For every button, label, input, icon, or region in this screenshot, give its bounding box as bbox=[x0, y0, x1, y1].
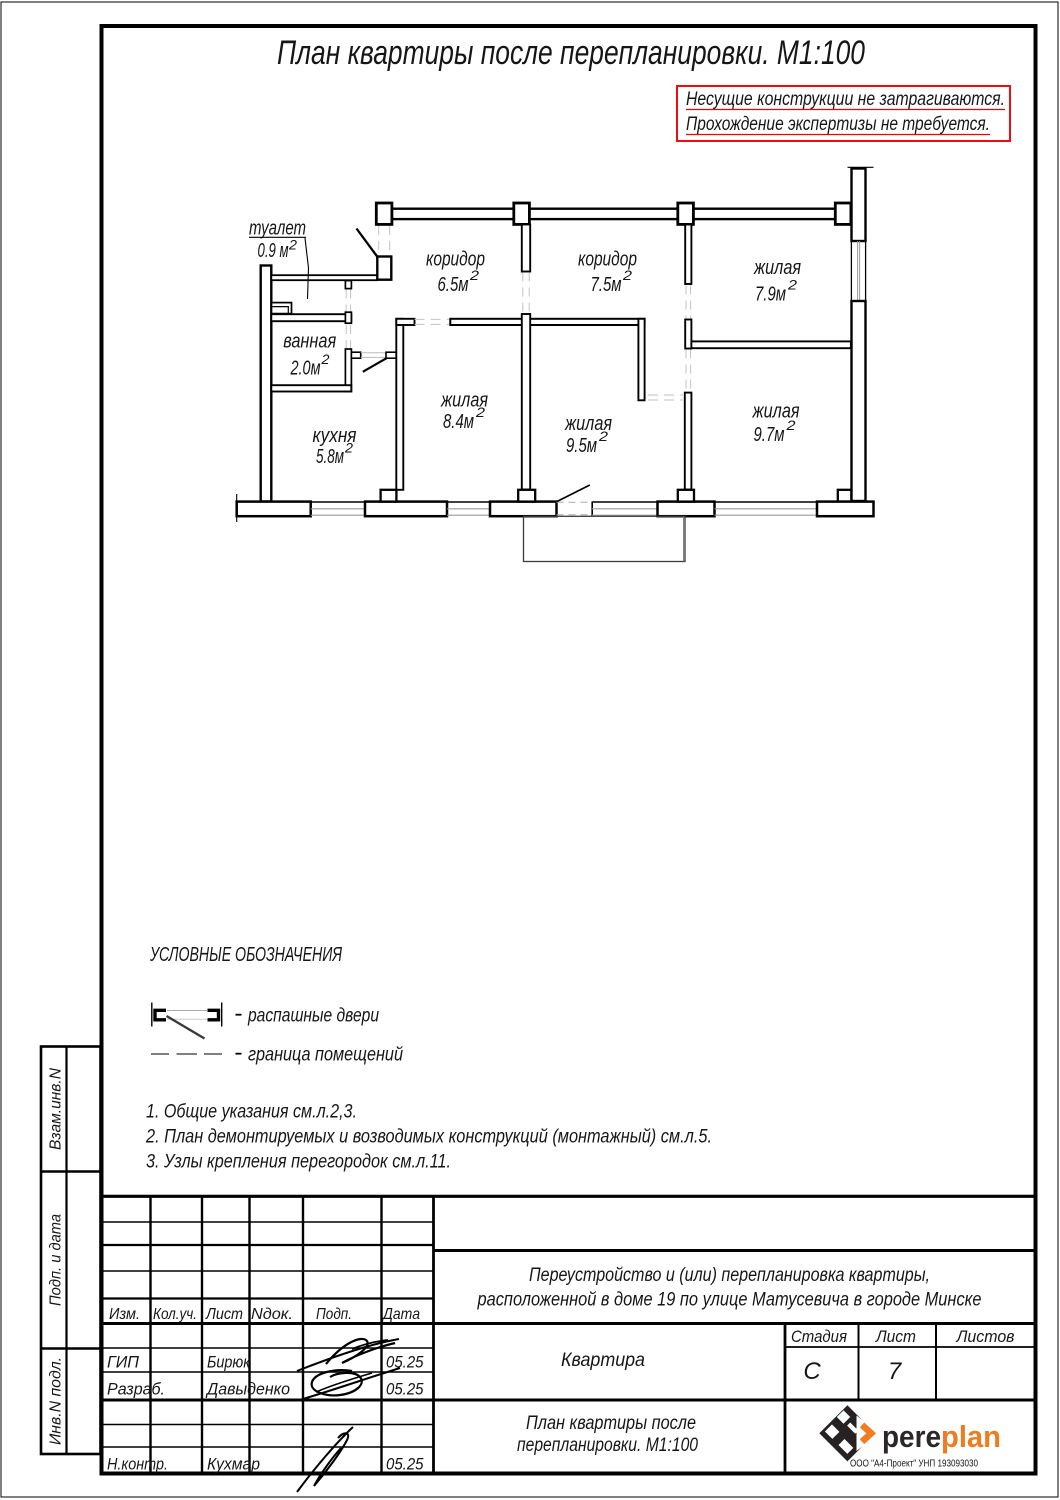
svg-text:Несущие конструкции не затраги: Несущие конструкции не затрагиваются. bbox=[686, 88, 1005, 110]
svg-text:Изм.: Изм. bbox=[109, 1306, 140, 1323]
svg-text:3. Узлы крепления перегородок: 3. Узлы крепления перегородок см.л.11. bbox=[146, 1151, 451, 1173]
svg-text:2: 2 bbox=[598, 429, 609, 444]
svg-text:Разраб.: Разраб. bbox=[107, 1380, 165, 1399]
svg-text:05.25: 05.25 bbox=[386, 1380, 424, 1399]
svg-text:7.5м: 7.5м bbox=[591, 274, 622, 296]
svg-text:граница помещений: граница помещений bbox=[248, 1044, 403, 1066]
svg-text:8.4м: 8.4м bbox=[443, 411, 474, 433]
svg-text:жилая: жилая bbox=[753, 257, 801, 279]
svg-text:Кол.уч.: Кол.уч. bbox=[153, 1306, 197, 1323]
svg-text:Переустройство и (или) перепла: Переустройство и (или) перепланировка кв… bbox=[529, 1264, 930, 1286]
svg-text:2.0м: 2.0м bbox=[290, 358, 321, 380]
svg-text:перепланировки. М1:100: перепланировки. М1:100 bbox=[517, 1434, 698, 1456]
svg-text:7.9м: 7.9м bbox=[755, 284, 786, 306]
svg-text:С: С bbox=[803, 1358, 821, 1385]
svg-text:распашные двери: распашные двери bbox=[247, 1005, 379, 1027]
svg-text:План квартиры после переплани: План квартиры после перепланировки. М1:1… bbox=[277, 34, 865, 72]
svg-text:2: 2 bbox=[320, 352, 330, 367]
svg-text:2: 2 bbox=[344, 441, 354, 456]
svg-text:ванная: ванная bbox=[283, 331, 336, 353]
svg-text:Квартира: Квартира bbox=[561, 1349, 645, 1371]
svg-text:Лист: Лист bbox=[875, 1327, 916, 1346]
svg-text:2: 2 bbox=[785, 418, 796, 433]
svg-text:1. Общие указания см.л.2,3.: 1. Общие указания см.л.2,3. bbox=[146, 1101, 357, 1123]
svg-text:5.8м: 5.8м bbox=[316, 446, 344, 468]
svg-text:9.5м: 9.5м bbox=[566, 435, 597, 457]
svg-text:6.5м: 6.5м bbox=[438, 274, 469, 296]
svg-text:Кухмар: Кухмар bbox=[207, 1455, 260, 1474]
svg-text:расположенной в доме 19 по ули: расположенной в доме 19 по улице Матусев… bbox=[477, 1289, 982, 1311]
svg-text:2: 2 bbox=[622, 268, 633, 283]
svg-text:ООО "А4-Проект" УНП 193093030: ООО "А4-Проект" УНП 193093030 bbox=[850, 1458, 978, 1470]
svg-text:Инв.N подл.: Инв.N подл. bbox=[48, 1357, 65, 1445]
svg-text:Дата: Дата bbox=[381, 1306, 420, 1323]
svg-text:Лист: Лист bbox=[205, 1306, 243, 1323]
svg-text:7: 7 bbox=[888, 1358, 903, 1385]
svg-text:ГИП: ГИП bbox=[107, 1353, 140, 1372]
svg-text:05.25: 05.25 bbox=[386, 1353, 424, 1372]
svg-text:2: 2 bbox=[469, 268, 480, 283]
svg-text:Подп.: Подп. bbox=[316, 1306, 352, 1323]
svg-text:Н.контр.: Н.контр. bbox=[107, 1455, 168, 1474]
svg-text:2. План демонтируемых и возво: 2. План демонтируемых и возводимых конст… bbox=[145, 1126, 712, 1148]
svg-text:Стадия: Стадия bbox=[791, 1327, 847, 1346]
svg-text:2: 2 bbox=[288, 238, 298, 253]
svg-text:05.25: 05.25 bbox=[386, 1455, 424, 1474]
svg-text:0.9 м: 0.9 м bbox=[258, 240, 289, 262]
svg-text:туалет: туалет bbox=[249, 218, 306, 240]
svg-text:9.7м: 9.7м bbox=[754, 424, 785, 446]
svg-text:Давыденко: Давыденко bbox=[205, 1380, 290, 1399]
svg-text:Бирюк: Бирюк bbox=[207, 1353, 251, 1372]
svg-text:План квартиры после: План квартиры после bbox=[526, 1412, 696, 1434]
svg-text:Прохождение экспертизы не треб: Прохождение экспертизы не требуется. bbox=[686, 113, 990, 135]
svg-text:Подп. и дата: Подп. и дата bbox=[48, 1214, 65, 1306]
svg-text:2: 2 bbox=[787, 278, 798, 293]
svg-text:Листов: Листов bbox=[956, 1327, 1015, 1346]
svg-text:2: 2 bbox=[475, 405, 486, 420]
svg-text:Nдок.: Nдок. bbox=[251, 1306, 293, 1323]
svg-text:Взам.инв.N: Взам.инв.N bbox=[48, 1067, 65, 1150]
svg-text:УСЛОВНЫЕ ОБОЗНАЧЕНИЯ: УСЛОВНЫЕ ОБОЗНАЧЕНИЯ bbox=[149, 943, 342, 966]
svg-text:pereplan: pereplan bbox=[882, 1419, 1001, 1454]
